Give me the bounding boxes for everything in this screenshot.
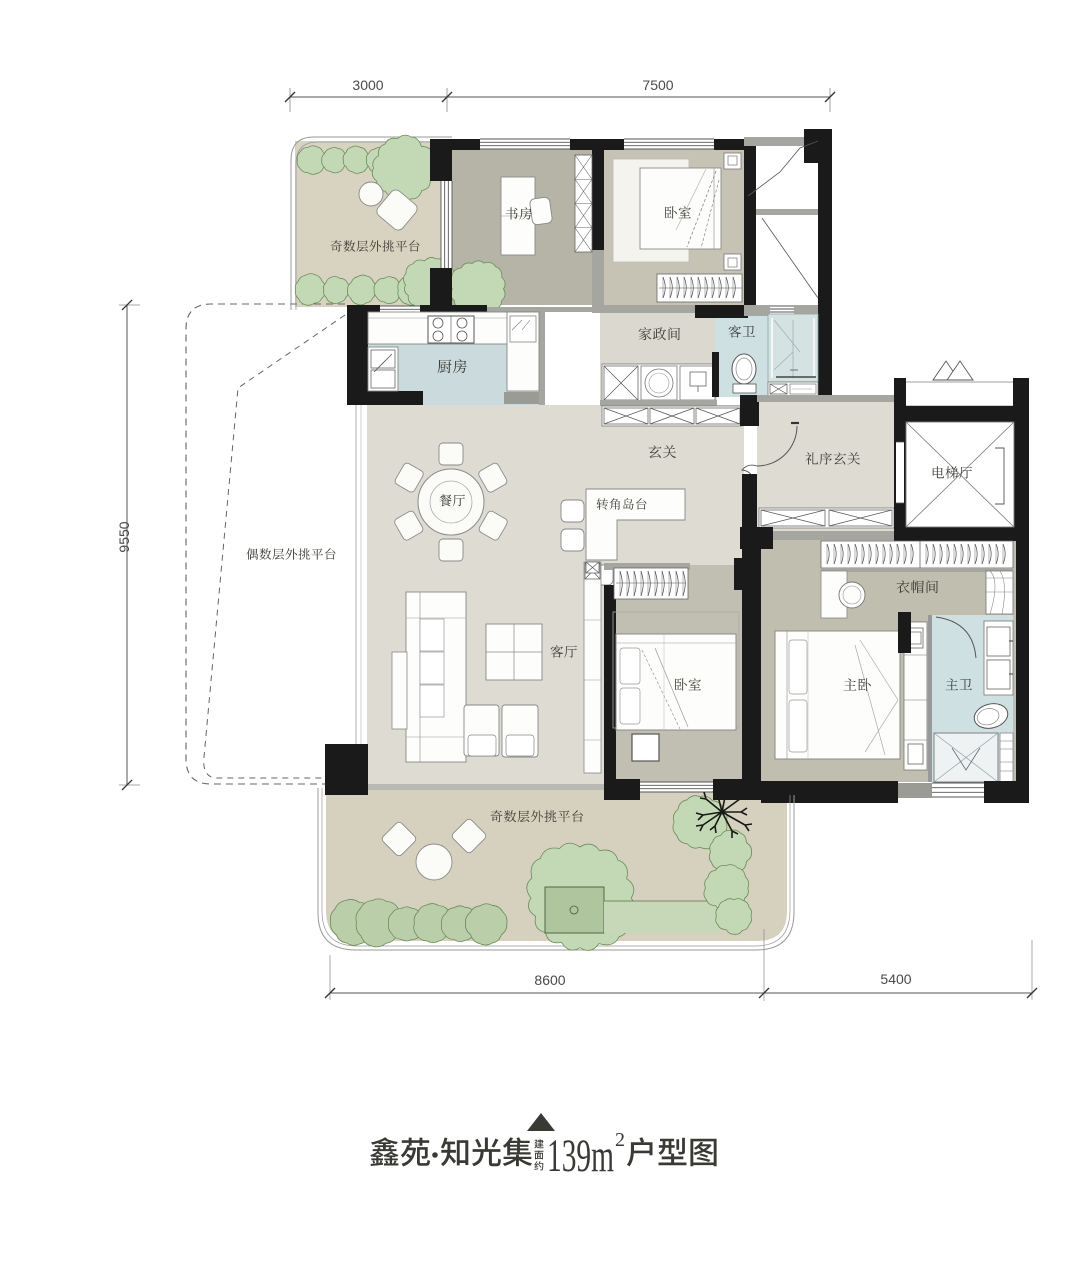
svg-text:2: 2 bbox=[615, 1129, 625, 1151]
svg-text:8600: 8600 bbox=[534, 972, 565, 988]
svg-text:9550: 9550 bbox=[116, 521, 132, 552]
svg-text:3000: 3000 bbox=[352, 77, 383, 93]
svg-text:7500: 7500 bbox=[642, 77, 673, 93]
svg-text:139m: 139m bbox=[547, 1130, 614, 1182]
svg-text:5400: 5400 bbox=[880, 971, 911, 987]
